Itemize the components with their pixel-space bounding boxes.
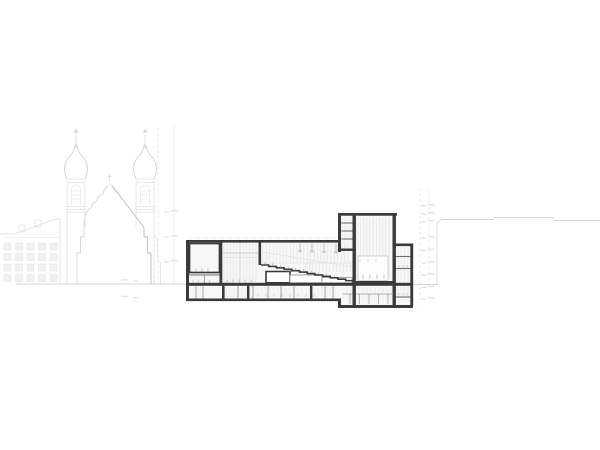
left-building-window: [27, 254, 34, 261]
left-building-window: [27, 243, 34, 250]
section-roof-slab: [186, 240, 338, 243]
ground-floor-slab: [186, 283, 413, 286]
elevation-mark-label: [428, 261, 435, 263]
wall-foyer-auditorium: [259, 242, 262, 265]
stage-batten-bar: [299, 250, 302, 252]
basement-bottom-slab: [186, 299, 338, 302]
church-roof-edge: [112, 187, 151, 284]
elevation-mark-label: [428, 236, 435, 238]
left-building-window: [16, 275, 23, 282]
left-building-window: [4, 275, 11, 282]
tower-wall-right: [393, 213, 396, 305]
church-right-tower-cornice: [135, 207, 155, 213]
church-left-tower-cornice: [66, 207, 86, 213]
elevation-mark-label: [428, 285, 435, 287]
elevation-mark-label: [121, 295, 128, 297]
left-building-window: [50, 275, 57, 282]
left-building-window: [39, 275, 46, 282]
basement-wall: [247, 286, 249, 299]
church-gable-volutes: [84, 187, 108, 223]
left-building-window: [39, 243, 46, 250]
elevation-mark-label: [428, 273, 435, 275]
elevation-mark-label: [171, 210, 178, 212]
architectural-section-drawing: [0, 0, 600, 450]
basement-step-wall: [338, 299, 341, 309]
pit-bottom-slab: [338, 305, 413, 308]
tower-top-slab: [338, 213, 397, 216]
left-building-window: [4, 254, 11, 261]
left-building-window: [16, 264, 23, 271]
stage-backdrop: [358, 256, 388, 281]
elevation-mark-label: [428, 212, 435, 214]
elevation-mark-label: [428, 297, 435, 299]
left-building-window: [4, 243, 11, 250]
church-left-belfry-window: [72, 186, 81, 206]
church-right-belfry-window: [141, 186, 150, 206]
stage-floor-slab: [356, 281, 393, 283]
church-right-tower-dome: [134, 145, 157, 180]
left-building-window: [16, 254, 23, 261]
elevation-mark-label: [121, 279, 128, 281]
left-building-window: [50, 264, 57, 271]
stage-batten-bar: [335, 252, 338, 254]
neighbor-building-roofline: [437, 218, 600, 223]
tower-wall-left: [338, 213, 341, 252]
left-building-window: [27, 264, 34, 271]
under-rake-room: [266, 272, 290, 283]
church-right-tower-cap: [135, 179, 155, 183]
left-building-window: [39, 254, 46, 261]
drawing-svg: [0, 0, 600, 450]
church-right-annex-profile: [155, 235, 161, 284]
left-building-window: [50, 254, 57, 261]
proscenium-wall: [353, 216, 356, 306]
left-building-window: [16, 243, 23, 250]
elevation-mark-label: [171, 260, 178, 262]
church-right-tower-star: [143, 129, 148, 135]
under-rake-room: [290, 275, 322, 283]
church-gable-cross: [108, 174, 112, 181]
elevation-mark-label: [171, 235, 178, 237]
stage-batten-bar: [311, 251, 314, 253]
church-left-tower-star: [74, 129, 79, 135]
elevation-mark-label: [428, 248, 435, 250]
church-left-tower-cap: [66, 179, 86, 183]
elevation-mark-label: [428, 204, 435, 206]
basement-wall: [310, 286, 312, 299]
left-building-window: [27, 275, 34, 282]
church-left-tower-dome: [65, 145, 88, 180]
left-building-window: [50, 243, 57, 250]
church-left-profile: [77, 222, 84, 284]
elevation-mark-label: [428, 220, 435, 222]
left-building-window: [39, 264, 46, 271]
basement-wall: [222, 286, 225, 299]
annex-wall-right: [410, 244, 413, 306]
section-outer-wall-left: [186, 240, 189, 301]
stage-batten-bar: [323, 251, 326, 253]
left-building-window: [4, 264, 11, 271]
